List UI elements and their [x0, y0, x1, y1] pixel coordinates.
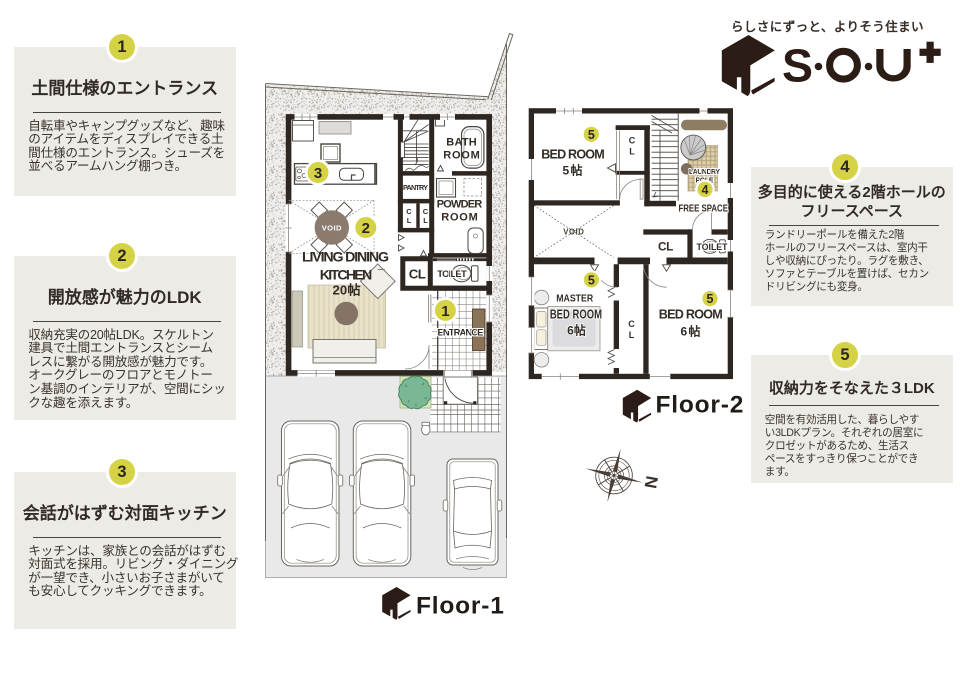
svg-text:20帖: 20帖 — [333, 282, 361, 298]
svg-text:5: 5 — [588, 128, 595, 142]
svg-text:5帖: 5帖 — [563, 163, 583, 178]
svg-text:ROOM: ROOM — [443, 150, 480, 162]
svg-text:S: S — [782, 40, 813, 92]
svg-text:FREE SPACE: FREE SPACE — [678, 204, 728, 215]
svg-text:6帖: 6帖 — [681, 324, 701, 339]
svg-text:CL: CL — [409, 267, 426, 282]
svg-text:2: 2 — [362, 220, 370, 237]
svg-text:N: N — [641, 474, 662, 489]
svg-text:1: 1 — [441, 303, 449, 320]
svg-text:C: C — [406, 207, 412, 216]
svg-text:VOID: VOID — [322, 223, 342, 232]
svg-text:BATH: BATH — [446, 137, 477, 149]
svg-text:5: 5 — [707, 292, 714, 306]
svg-text:L: L — [629, 147, 635, 157]
svg-text:C: C — [628, 319, 635, 329]
svg-text:BED ROOM: BED ROOM — [659, 308, 723, 322]
svg-text:MASTER: MASTER — [556, 293, 593, 305]
svg-text:C: C — [423, 207, 429, 216]
svg-text:5: 5 — [588, 273, 595, 287]
svg-text:VOID: VOID — [563, 228, 584, 237]
svg-text:3: 3 — [314, 165, 322, 182]
svg-text:PANTRY: PANTRY — [403, 183, 428, 192]
svg-text:Floor-1: Floor-1 — [416, 593, 505, 620]
svg-text:6帖: 6帖 — [567, 323, 586, 338]
svg-text:KITCHEN: KITCHEN — [320, 268, 373, 284]
svg-text:L: L — [407, 216, 412, 225]
svg-text:TOILET: TOILET — [437, 269, 467, 280]
svg-text:CL: CL — [658, 240, 673, 254]
svg-text:ENTRANCE: ENTRANCE — [438, 328, 484, 339]
svg-text:ROOM: ROOM — [441, 212, 478, 224]
svg-text:BED ROOM: BED ROOM — [541, 148, 605, 162]
svg-text:POWDER: POWDER — [437, 199, 483, 211]
svg-text:LAUNDRY: LAUNDRY — [689, 169, 720, 176]
svg-text:L: L — [629, 330, 635, 340]
svg-text:BED ROOM: BED ROOM — [550, 308, 602, 322]
svg-text:Floor-2: Floor-2 — [656, 392, 745, 419]
svg-text:C: C — [629, 136, 636, 146]
svg-text:4: 4 — [702, 183, 709, 197]
svg-text:TOILET: TOILET — [697, 242, 729, 252]
svg-text:L: L — [423, 216, 428, 225]
svg-text:LIVING DINING: LIVING DINING — [302, 250, 389, 266]
